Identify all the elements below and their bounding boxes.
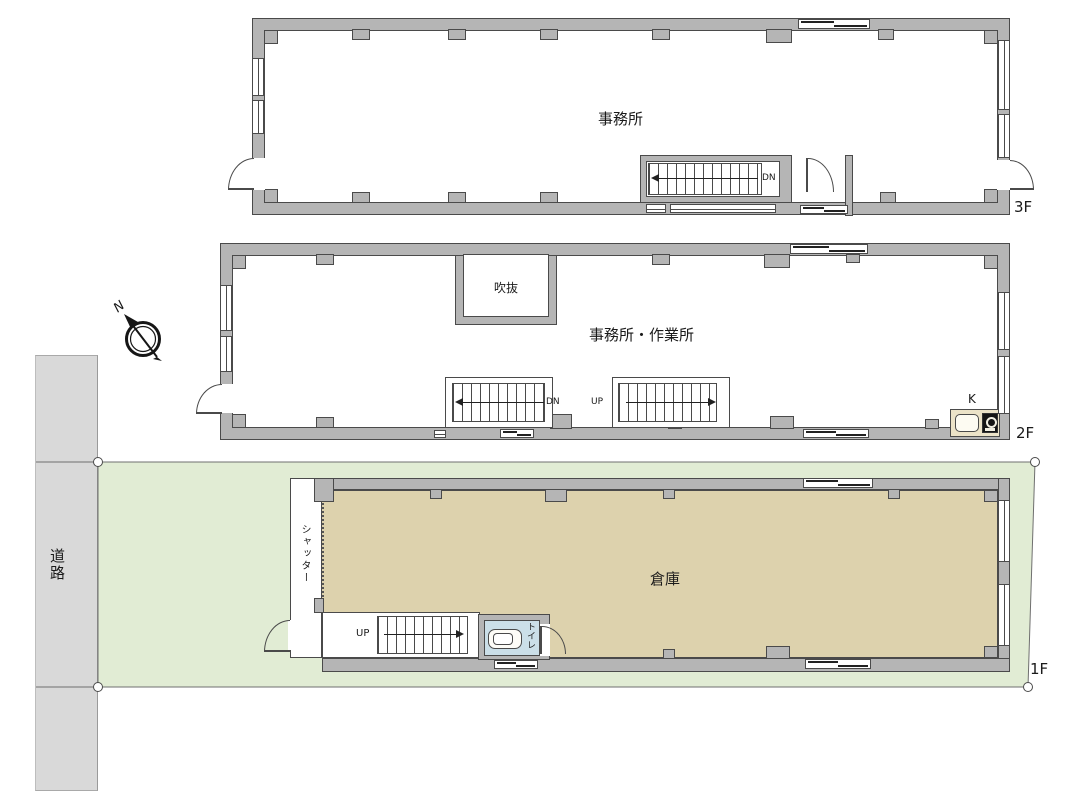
1f-toilet-label: トイレ: [524, 622, 537, 649]
2f-kitchen-label: K: [968, 392, 976, 406]
2f-floor-tag: 2F: [1016, 424, 1034, 442]
3f-sliding-window-bottom: [800, 205, 848, 214]
2f-corner-column: [232, 414, 246, 428]
needle-tip: [124, 314, 138, 329]
1f-column: [545, 489, 567, 502]
1f-stair-direction: UP: [356, 628, 369, 639]
2f-window-right: [998, 356, 1010, 414]
2f-kitchen-sink: [955, 414, 979, 432]
needle-tail: [153, 357, 162, 361]
2f-column: [770, 416, 794, 429]
3f-column: [540, 192, 558, 203]
1f-wall-bottom: [322, 658, 1010, 672]
3f-floor-tag: 3F: [1014, 198, 1032, 216]
3f-corner-column: [984, 189, 998, 203]
1f-stair-arrow: [384, 634, 458, 635]
3f-column: [352, 29, 370, 40]
1f-column: [314, 478, 334, 502]
3f-sliding-window-top: [798, 19, 870, 29]
1f-entry-door-leaf: [264, 650, 291, 652]
2f-stair-up-arrow: [626, 402, 710, 403]
3f-window-bottom: [670, 204, 776, 213]
3f-door-leaf-right: [1010, 188, 1034, 190]
3f-stair-arrowhead: [651, 174, 659, 182]
3f-window-left: [252, 58, 264, 96]
3f-column: [352, 192, 370, 203]
1f-shutter-label: シャッター: [297, 524, 312, 584]
3f-column: [878, 29, 894, 40]
1f-room-label: 倉庫: [650, 568, 680, 589]
boundary-marker: [1031, 458, 1040, 467]
3f-column: [652, 29, 670, 40]
3f-corner-column: [984, 30, 998, 44]
2f-sliding-window-top: [790, 244, 868, 254]
3f-door-leaf-left: [228, 188, 254, 190]
2f-sliding-window-bottom: [500, 429, 534, 438]
2f-column: [846, 254, 860, 263]
1f-window-right: [998, 500, 1010, 562]
1f-window-right: [998, 584, 1010, 646]
floor-plan-canvas: 道路 N: [0, 0, 1080, 810]
2f-stair-down-direction: DN: [546, 397, 560, 407]
1f-corner-column: [984, 646, 998, 658]
1f-column: [888, 489, 900, 499]
1f-sliding-window-top: [803, 478, 873, 488]
3f-window-right: [998, 40, 1010, 110]
2f-corner-column: [984, 255, 998, 269]
3f-room-label: 事務所: [598, 108, 643, 129]
2f-column: [764, 254, 790, 268]
1f-column: [314, 598, 324, 613]
1f-sliding-window-bottom: [805, 659, 871, 669]
3f-column: [880, 192, 896, 203]
3f-window-left: [252, 100, 264, 134]
3f-corner-column: [264, 30, 278, 44]
2f-window-bottom: [434, 430, 446, 438]
2f-corner-column: [232, 255, 246, 269]
3f-column: [766, 29, 792, 43]
2f-void-label: 吹抜: [494, 279, 518, 296]
2f-stair-up-direction: UP: [591, 397, 603, 407]
2f-room-label: 事務所・作業所: [589, 324, 694, 345]
2f-column: [925, 419, 939, 429]
1f-column: [430, 489, 442, 499]
2f-window-right: [998, 292, 1010, 350]
3f-corner-column: [264, 189, 278, 203]
2f-column: [550, 414, 572, 429]
3f-stair-arrow: [656, 178, 758, 179]
3f-stair-treads: [648, 163, 762, 195]
1f-column: [663, 649, 675, 659]
boundary-marker: [1024, 683, 1033, 692]
north-label: N: [111, 298, 128, 316]
2f-kitchen-stove: [982, 413, 998, 433]
1f-sliding-window-toilet: [494, 660, 538, 669]
1f-stair-treads: [377, 616, 468, 654]
3f-window-right: [998, 114, 1010, 158]
2f-column: [652, 254, 670, 265]
1f-column: [663, 489, 675, 499]
boundary-marker: [94, 683, 103, 692]
road-label: 道路: [47, 548, 68, 582]
1f-shutter-line: [322, 490, 324, 613]
2f-stair-down-arrow: [460, 402, 544, 403]
1f-floor-tag: 1F: [1030, 660, 1048, 678]
1f-column: [766, 646, 790, 659]
1f-stair-arrowhead: [456, 630, 464, 638]
1f-corner-column: [984, 490, 998, 502]
north-arrow-compass: N: [108, 294, 174, 368]
2f-window-left: [220, 336, 232, 372]
3f-stair-direction: DN: [762, 173, 776, 183]
2f-column: [316, 417, 334, 428]
3f-door-opening-right: [997, 160, 1011, 190]
2f-window-left: [220, 285, 232, 331]
2f-column: [316, 254, 334, 265]
3f-column: [540, 29, 558, 40]
boundary-marker: [94, 458, 103, 467]
2f-door-leaf-left: [196, 412, 222, 414]
3f-column: [448, 29, 466, 40]
2f-stair-up-arrowhead: [708, 398, 716, 406]
1f-toilet-fixture: [488, 629, 522, 649]
3f-window-bottom: [646, 204, 666, 213]
2f-stair-down-arrowhead: [455, 398, 463, 406]
3f-column: [448, 192, 466, 203]
2f-sliding-window-bottom: [803, 429, 869, 438]
